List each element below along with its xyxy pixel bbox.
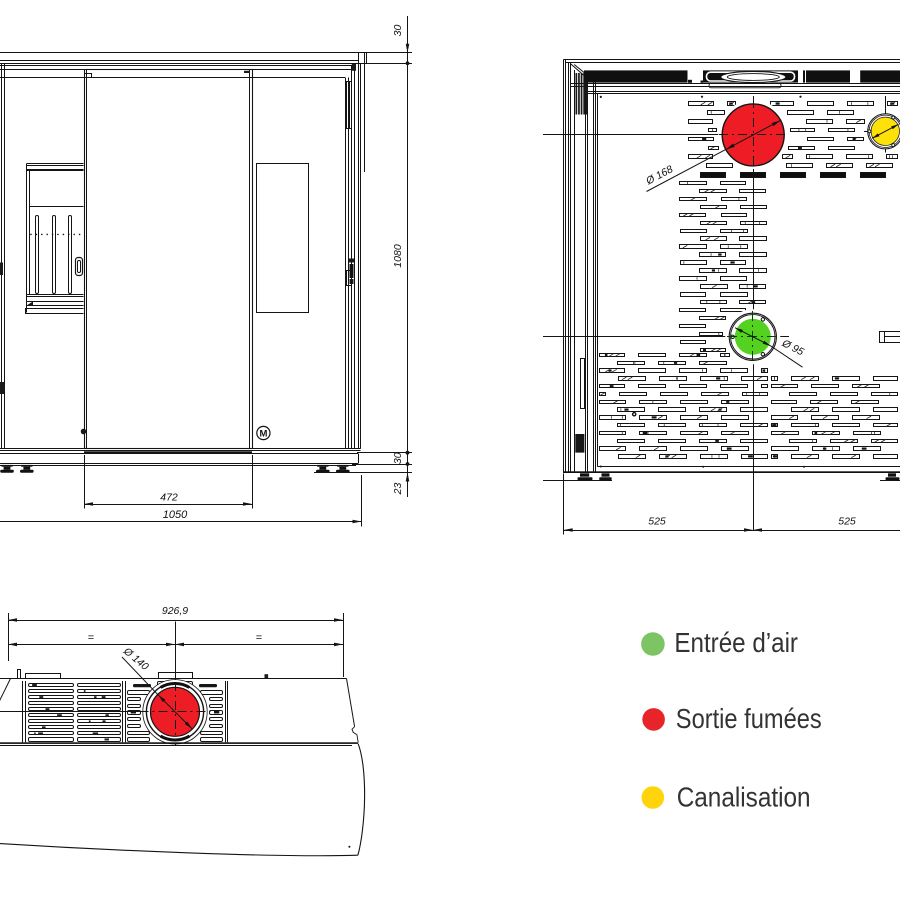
svg-text:23: 23 xyxy=(392,483,404,496)
svg-text:=: = xyxy=(256,632,262,644)
svg-text:Entrée d’air: Entrée d’air xyxy=(674,627,798,658)
svg-text:1050: 1050 xyxy=(163,509,188,521)
svg-text:Canalisation: Canalisation xyxy=(677,782,811,813)
svg-text:M: M xyxy=(259,429,267,440)
svg-text:=: = xyxy=(88,632,94,644)
svg-text:Sortie fumées: Sortie fumées xyxy=(676,703,822,734)
svg-text:1080: 1080 xyxy=(392,244,404,268)
svg-text:525: 525 xyxy=(838,516,856,528)
svg-text:30: 30 xyxy=(392,25,404,37)
svg-text:926,9: 926,9 xyxy=(162,605,188,617)
svg-text:30: 30 xyxy=(392,452,404,464)
svg-text:472: 472 xyxy=(160,492,178,504)
svg-text:525: 525 xyxy=(648,516,666,528)
